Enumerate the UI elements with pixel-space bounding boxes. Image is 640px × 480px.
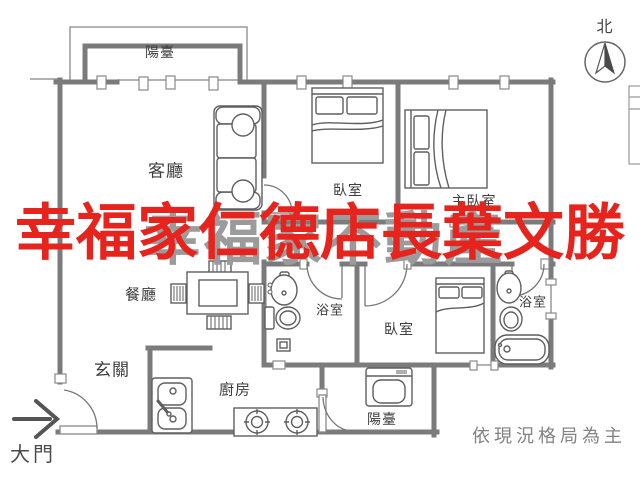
compass-needle-left	[596, 43, 605, 73]
red-agent-watermark: 幸福家仁德店長葉文勝	[15, 203, 625, 264]
disclaimer-text: 依現況格局為主	[472, 428, 626, 446]
floor-plan-image: 陽臺 客廳 臥室 主臥室 餐廳 浴室 臥室 浴室 玄關 廚房 陽臺 大門 北 依…	[0, 0, 640, 480]
room-label-dining-room: 餐廳	[125, 288, 157, 303]
bed-master	[405, 110, 487, 188]
washing-machine	[366, 368, 412, 406]
bed-bedroom2	[436, 278, 484, 353]
room-label-living-room: 客廳	[148, 164, 184, 181]
north-label: 北	[596, 19, 613, 35]
room-label-kitchen: 廚房	[219, 383, 251, 398]
room-label-bedroom-2: 臥室	[384, 323, 414, 337]
compass	[585, 42, 625, 82]
bathroom2-fixtures	[495, 271, 549, 364]
room-label-bathroom-2: 浴室	[519, 297, 547, 310]
room-label-bedroom-1: 臥室	[333, 184, 363, 198]
balcony-outline	[30, 27, 247, 82]
sofa	[214, 106, 262, 210]
kitchen-sink	[152, 378, 192, 433]
room-label-foyer: 玄關	[94, 363, 130, 380]
room-label-bathroom-1: 浴室	[316, 305, 344, 318]
entry-arrow	[14, 401, 57, 437]
bathroom1-fixtures	[265, 272, 300, 351]
room-label-balcony-top: 陽臺	[145, 46, 175, 60]
compass-needle-right	[605, 43, 614, 73]
main-door-label: 大門	[10, 444, 56, 464]
main-door-arc	[64, 390, 97, 428]
stove	[234, 408, 317, 436]
edge-cabinet	[629, 86, 640, 164]
room-label-balcony-bottom: 陽臺	[367, 413, 397, 427]
balcony-door-arc	[323, 397, 351, 431]
bed-bedroom1	[312, 88, 383, 163]
main-door-leaf	[60, 426, 97, 434]
balcony-door-leaf	[319, 395, 326, 432]
